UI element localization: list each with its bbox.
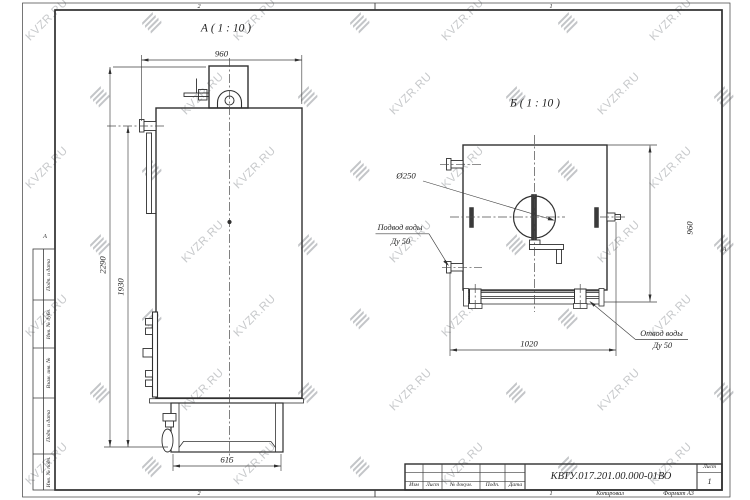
drawing-sheet: KVZR.RUKVZR.RUKVZR.RUKVZR.RUKVZR.RUKVZR.… <box>0 0 750 500</box>
inlet-label-line2: Ду 50 <box>391 237 410 245</box>
view-a-dim-arrows <box>109 59 302 468</box>
stamp-col-podp-data-2: Подп. и дата <box>47 410 53 442</box>
stamp-col-inv-podl: Инв. № подл. <box>47 457 53 488</box>
view-b-dimensions <box>376 145 689 356</box>
dim-flue-diameter: Ø250 <box>396 172 416 181</box>
bottom-flange <box>150 399 304 403</box>
title-col-data: Дата <box>509 483 522 489</box>
inlet-label-line1: Подвод воды <box>378 223 423 231</box>
title-col-list: Лист <box>426 483 439 489</box>
outlet-label-line1: Отвод воды <box>640 329 683 337</box>
centerline-dot <box>227 220 231 224</box>
dim-960-right: 960 <box>686 221 695 234</box>
damper-lever <box>184 79 209 101</box>
sheet-number: 1 <box>707 477 711 485</box>
view-a-dimensions <box>104 55 302 471</box>
zone-top-1: 1 <box>549 3 552 9</box>
view-a-linework <box>107 58 304 462</box>
dim-1020: 1020 <box>520 340 538 349</box>
zone-bottom-1: 1 <box>549 490 552 496</box>
view-b-linework <box>440 135 627 312</box>
zone-left-a: А <box>43 234 47 240</box>
sheet-label: Лист <box>703 466 716 472</box>
base-pedestal <box>171 403 283 452</box>
flue-box <box>209 66 248 108</box>
base-rails <box>464 289 605 309</box>
title-col-izm: Изм <box>409 483 419 489</box>
dim-960-top: 960 <box>215 49 228 58</box>
format-label: Формат А3 <box>663 490 694 496</box>
view-a-title: А ( 1 : 10 ) <box>201 23 251 35</box>
stamp-col-inv-dubl: Инв. № дубл. <box>47 309 53 339</box>
zone-right-a: А <box>723 247 727 253</box>
dim-615: 615 <box>220 456 233 465</box>
title-col-podp: Подп. <box>486 483 500 489</box>
stamp-col-podp-data-1: Подп. и дата <box>47 259 53 291</box>
outlet-label-line2: Ду 50 <box>653 341 672 349</box>
dim-2290: 2290 <box>98 256 107 274</box>
drawing-designation: КВТУ.017.201.00.000-01ВО <box>551 472 672 483</box>
boiler-body <box>156 108 302 398</box>
drain-cock <box>162 414 176 453</box>
drawing-linework <box>0 0 750 500</box>
zone-top-2: 2 <box>197 3 200 9</box>
leader-outlet <box>591 302 636 340</box>
stamp-col-vzam-inv: Взам. инв. № <box>47 358 53 389</box>
copied-by-label: Копировал <box>596 490 624 496</box>
view-b-title: Б ( 1 : 10 ) <box>510 98 560 110</box>
title-col-doc: № докум. <box>450 483 472 489</box>
slot-left <box>470 208 474 228</box>
sheet-frame <box>23 3 731 497</box>
view-a-centerlines <box>107 58 230 462</box>
dim-1930: 1930 <box>116 278 125 296</box>
zone-bottom-2: 2 <box>197 490 200 496</box>
slot-right <box>595 208 599 228</box>
